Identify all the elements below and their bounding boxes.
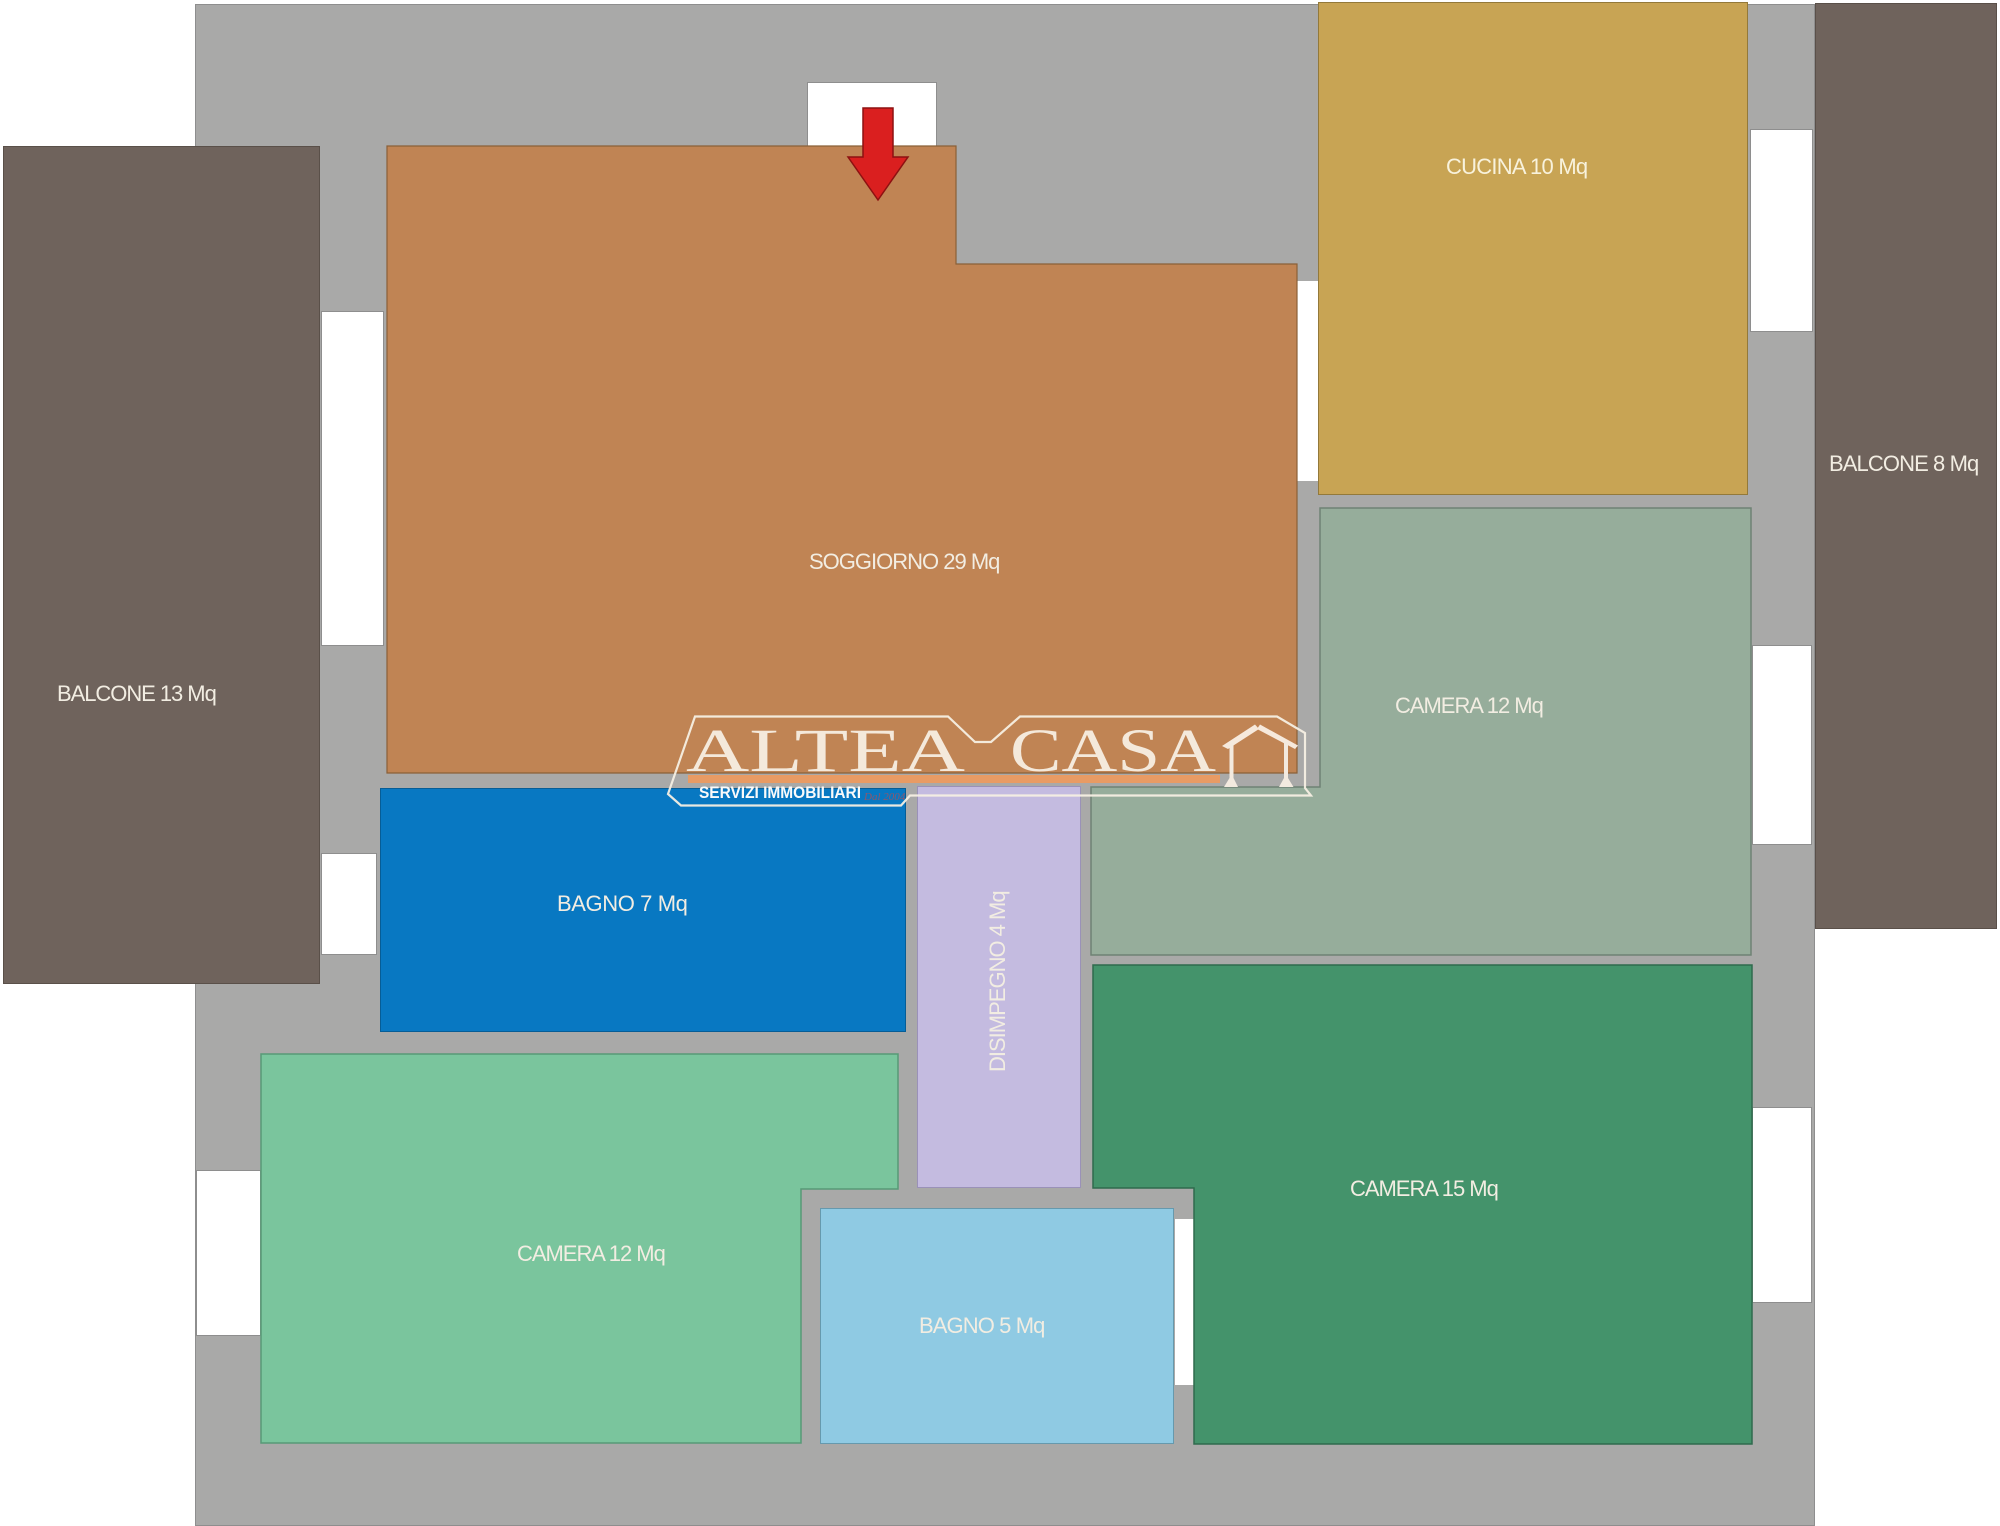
svg-text:SERVIZI IMMOBILIARI: SERVIZI IMMOBILIARI [699,783,861,802]
svg-text:CASA: CASA [1010,718,1216,785]
svg-text:ALTEA: ALTEA [686,718,965,785]
svg-text:Dal 2004: Dal 2004 [863,791,906,803]
